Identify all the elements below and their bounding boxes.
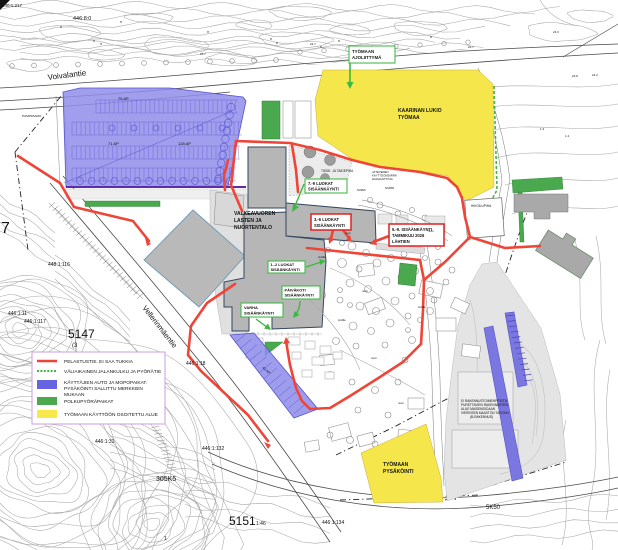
svg-text:SISÄÄNKÄYNTI: SISÄÄNKÄYNTI — [244, 311, 274, 316]
svg-text:tontilla: tontilla — [318, 255, 326, 259]
svg-text:*: * — [60, 26, 62, 32]
svg-text:NURMI: NURMI — [385, 186, 394, 190]
svg-text:1.3: 1.3 — [540, 127, 545, 131]
svg-text:PYSÄKÖINTI: PYSÄKÖINTI — [383, 468, 414, 475]
svg-text:MUKAAN: MUKAAN — [64, 392, 85, 398]
svg-text:tontilla: tontilla — [338, 318, 346, 322]
svg-text:24.7: 24.7 — [200, 52, 206, 56]
svg-text:POLKUPYÖRÄPAIKAT: POLKUPYÖRÄPAIKAT — [64, 398, 113, 405]
svg-text:446:1:11: 446:1:11 — [8, 311, 27, 317]
svg-text:numi: numi — [345, 231, 351, 235]
svg-text:KÄYTTÄJIEN AUTO JA MOPOPAIKAT.: KÄYTTÄJIEN AUTO JA MOPOPAIKAT. — [64, 379, 147, 386]
svg-text:TYÖMAA: TYÖMAA — [398, 114, 420, 121]
svg-text:TIEDE- JA TAIDEPIHA: TIEDE- JA TAIDEPIHA — [321, 169, 354, 173]
svg-text:*: * — [93, 40, 95, 46]
svg-text:TYÖMAAN: TYÖMAAN — [352, 49, 374, 54]
svg-text:TYÖMAAN KÄYTTÖÖN OSOITETTU ALU: TYÖMAAN KÄYTTÖÖN OSOITETTU ALUE — [64, 411, 158, 418]
svg-text:446:1:31: 446:1:31 — [95, 439, 115, 445]
svg-text:*: * — [120, 21, 122, 27]
svg-text:*: * — [100, 43, 102, 49]
svg-text:PYSÄKÖINTI SALLITTU MERKKIEN: PYSÄKÖINTI SALLITTU MERKKIEN — [64, 385, 143, 392]
svg-text:TAMMIKUU 2026: TAMMIKUU 2026 — [392, 233, 425, 238]
svg-text:TYÖMAAN: TYÖMAAN — [383, 461, 409, 468]
svg-text:1.4: 1.4 — [565, 134, 570, 138]
svg-text:LÄHTIEN: LÄHTIEN — [392, 239, 410, 244]
svg-text:7: 7 — [1, 220, 10, 237]
svg-text:*: * — [276, 42, 278, 48]
svg-text:SISÄÄNKÄYNTI: SISÄÄNKÄYNTI — [271, 267, 300, 272]
svg-text:numi: numi — [398, 401, 404, 405]
svg-text:305K5: 305K5 — [156, 476, 176, 483]
svg-text:tontilla: tontilla — [418, 305, 426, 309]
svg-text:LASTEN JA: LASTEN JA — [234, 218, 262, 224]
svg-text:24.8: 24.8 — [572, 74, 578, 78]
svg-text:71 AP: 71 AP — [108, 141, 119, 146]
svg-text:446:1:134: 446:1:134 — [322, 520, 344, 526]
svg-text:446:8:0: 446:8:0 — [73, 16, 91, 22]
svg-text:HIKOILUPIHA: HIKOILUPIHA — [471, 204, 492, 208]
svg-text:HAJUHAITTOJA: HAJUHAITTOJA — [372, 177, 393, 181]
svg-text:*: * — [207, 31, 209, 37]
svg-text:NURMI: NURMI — [357, 188, 366, 192]
svg-text:24.3: 24.3 — [553, 30, 559, 34]
svg-text:VÄLIAIKAINEN JALANKULKU JA PYÖ: VÄLIAIKAINEN JALANKULKU JA PYÖRÄTIE — [64, 368, 161, 375]
svg-text:5151: 5151 — [229, 514, 256, 528]
svg-text:KAARINAN LUKIO: KAARINAN LUKIO — [398, 108, 442, 114]
svg-text:446:1:18: 446:1:18 — [186, 361, 206, 367]
svg-text:(3: (3 — [72, 343, 78, 349]
svg-text:PUMPPAAMO: PUMPPAAMO — [22, 114, 42, 118]
svg-text:SISÄÄNKÄYNTI: SISÄÄNKÄYNTI — [308, 187, 339, 192]
svg-text:446:1:132: 446:1:132 — [202, 446, 224, 452]
svg-text:24.2: 24.2 — [592, 73, 598, 77]
svg-text:75 AP: 75 AP — [118, 96, 129, 101]
svg-text:446:1:117: 446:1:117 — [24, 319, 46, 325]
svg-text:3.-6 LUOKAT: 3.-6 LUOKAT — [314, 217, 339, 222]
svg-text:numi: numi — [428, 229, 434, 233]
svg-text:(B-RAKENNUS): (B-RAKENNUS) — [470, 415, 493, 419]
svg-text:1:46: 1:46 — [256, 521, 266, 527]
svg-text:*: * — [270, 38, 272, 44]
svg-text:24.7: 24.7 — [468, 45, 474, 49]
svg-text:128 AP: 128 AP — [178, 141, 191, 146]
svg-text:PELASTUSTIE. EI SAA TUKKIA: PELASTUSTIE. EI SAA TUKKIA — [64, 359, 134, 365]
svg-text:VARHA: VARHA — [244, 305, 258, 310]
svg-text:5.-9. SISÄÄNKÄYNTI: 5.-9. SISÄÄNKÄYNTI — [392, 227, 432, 232]
svg-text:24.7: 24.7 — [310, 42, 316, 46]
svg-text:*: * — [338, 40, 340, 46]
svg-text:5147: 5147 — [68, 327, 95, 341]
svg-text:NUORTENTALO: NUORTENTALO — [234, 225, 272, 231]
svg-text:5K50: 5K50 — [486, 505, 501, 511]
svg-text:SISÄÄNKÄYNTI: SISÄÄNKÄYNTI — [285, 293, 314, 298]
svg-text:440:1:217: 440:1:217 — [2, 3, 23, 8]
svg-text:7.-9 LUOKAT: 7.-9 LUOKAT — [308, 181, 333, 186]
svg-text:numi: numi — [371, 356, 377, 360]
svg-text:1: 1 — [164, 536, 167, 542]
svg-text:VALKEAVUOREN: VALKEAVUOREN — [234, 211, 276, 217]
svg-text:AJOLIITTYMÄ: AJOLIITTYMÄ — [352, 55, 382, 60]
svg-text:*: * — [430, 36, 432, 42]
svg-text:448:1:116: 448:1:116 — [48, 262, 70, 268]
svg-text:SISÄÄNKÄYNTI: SISÄÄNKÄYNTI — [314, 223, 345, 228]
svg-text:numi: numi — [362, 289, 368, 293]
